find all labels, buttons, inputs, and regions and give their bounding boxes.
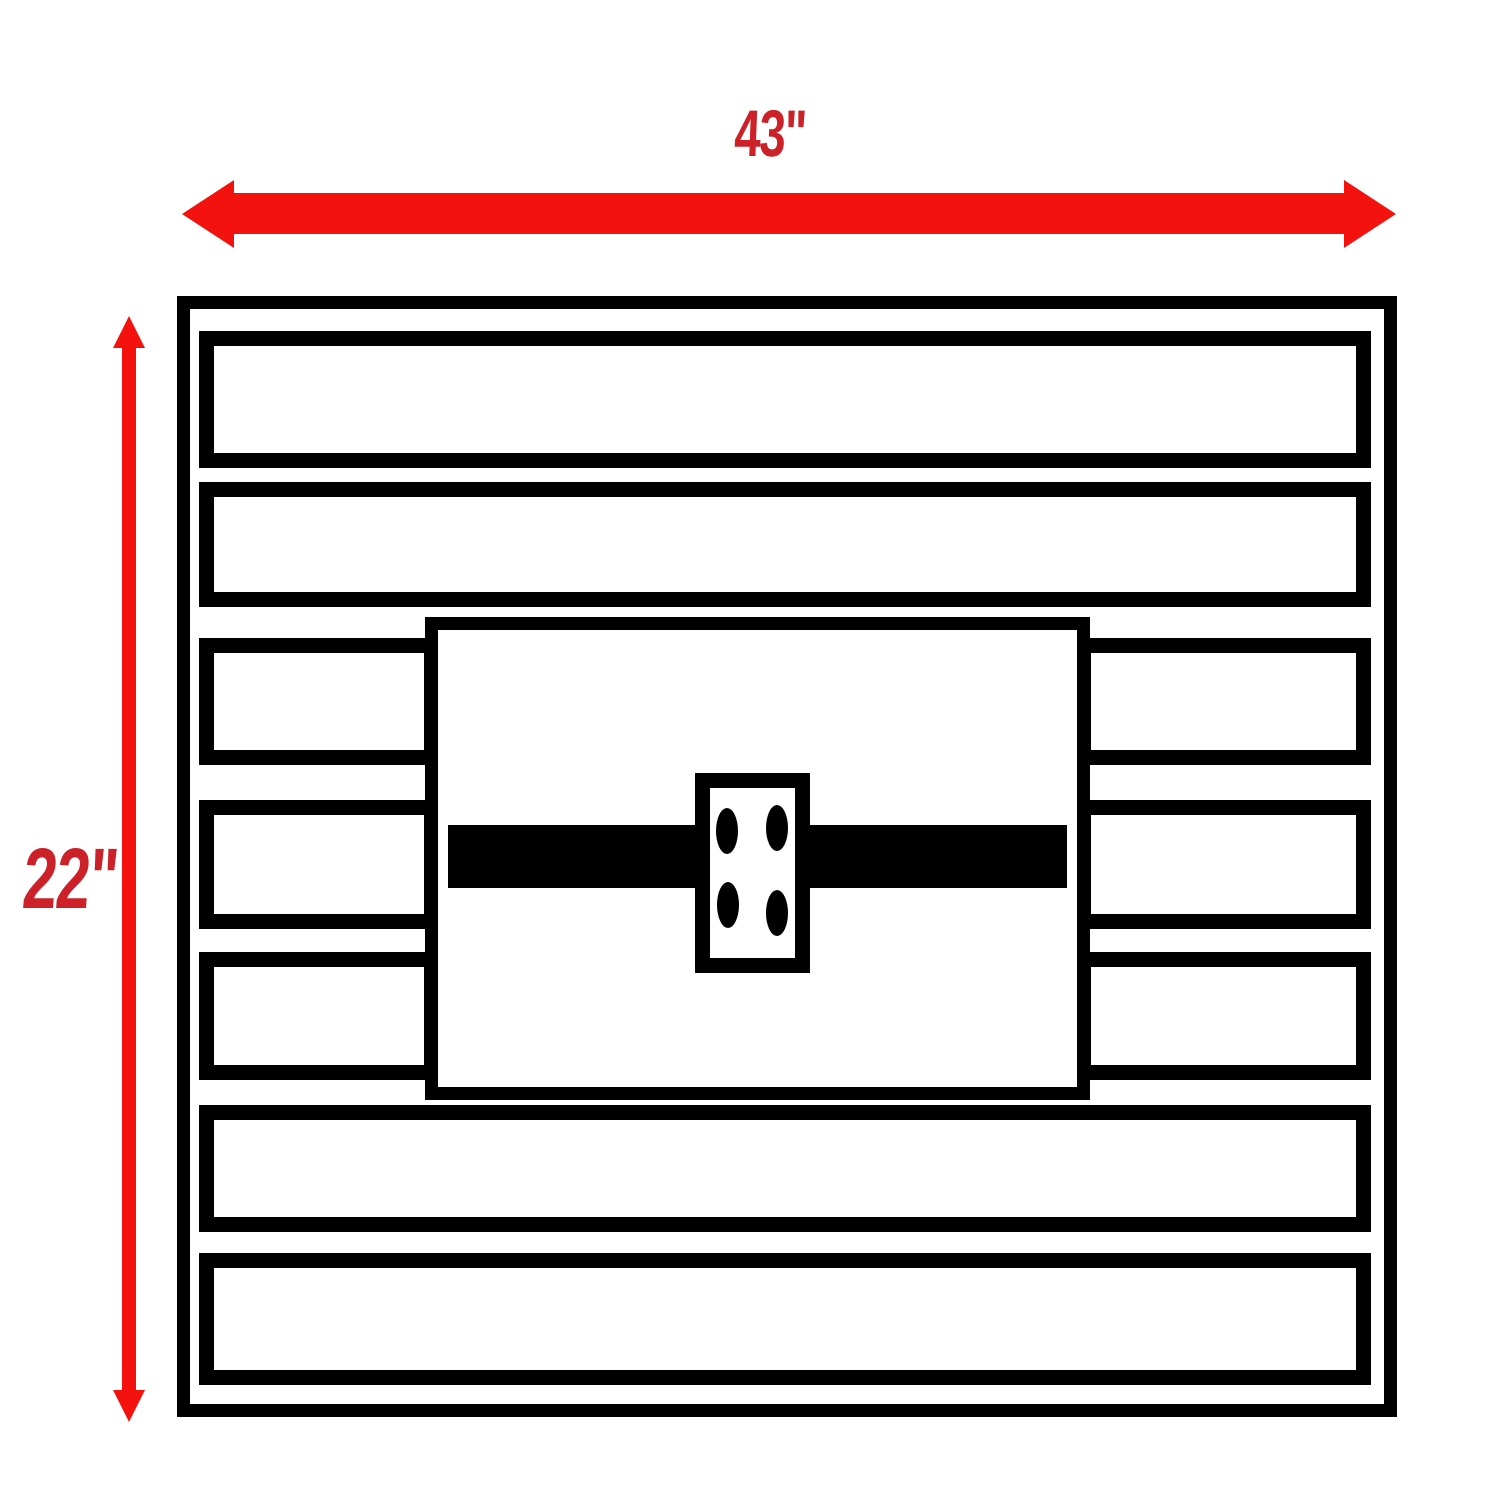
width-arrow-left-arrowhead-icon [182,180,234,248]
width-arrow-shaft [222,193,1354,234]
bolt-hole-bottom-left-icon [717,882,739,928]
height-arrow-bottom-arrowhead-icon [113,1390,145,1422]
slat-top-1 [199,331,1371,468]
slat-right-3 [1076,952,1371,1080]
bolt-hole-bottom-right-icon [766,890,788,936]
height-arrow-shaft [122,342,136,1396]
mount-plate [695,773,810,973]
height-dimension-label: 22" [20,836,120,922]
dimension-diagram: 43" 22" [0,0,1500,1500]
slat-right-1 [1076,638,1371,765]
slat-top-2 [199,482,1371,607]
width-arrow-right-arrowhead-icon [1344,180,1396,248]
height-arrow-top-arrowhead-icon [113,316,145,348]
bolt-hole-top-left-icon [716,808,738,854]
width-dimension-label: 43" [661,100,879,166]
slat-bottom-2 [199,1253,1371,1385]
slat-left-1 [199,638,439,765]
slat-right-2 [1076,800,1371,929]
slat-left-2 [199,800,439,929]
slat-left-3 [199,952,439,1080]
slat-bottom-1 [199,1105,1371,1232]
bolt-hole-top-right-icon [766,805,788,851]
